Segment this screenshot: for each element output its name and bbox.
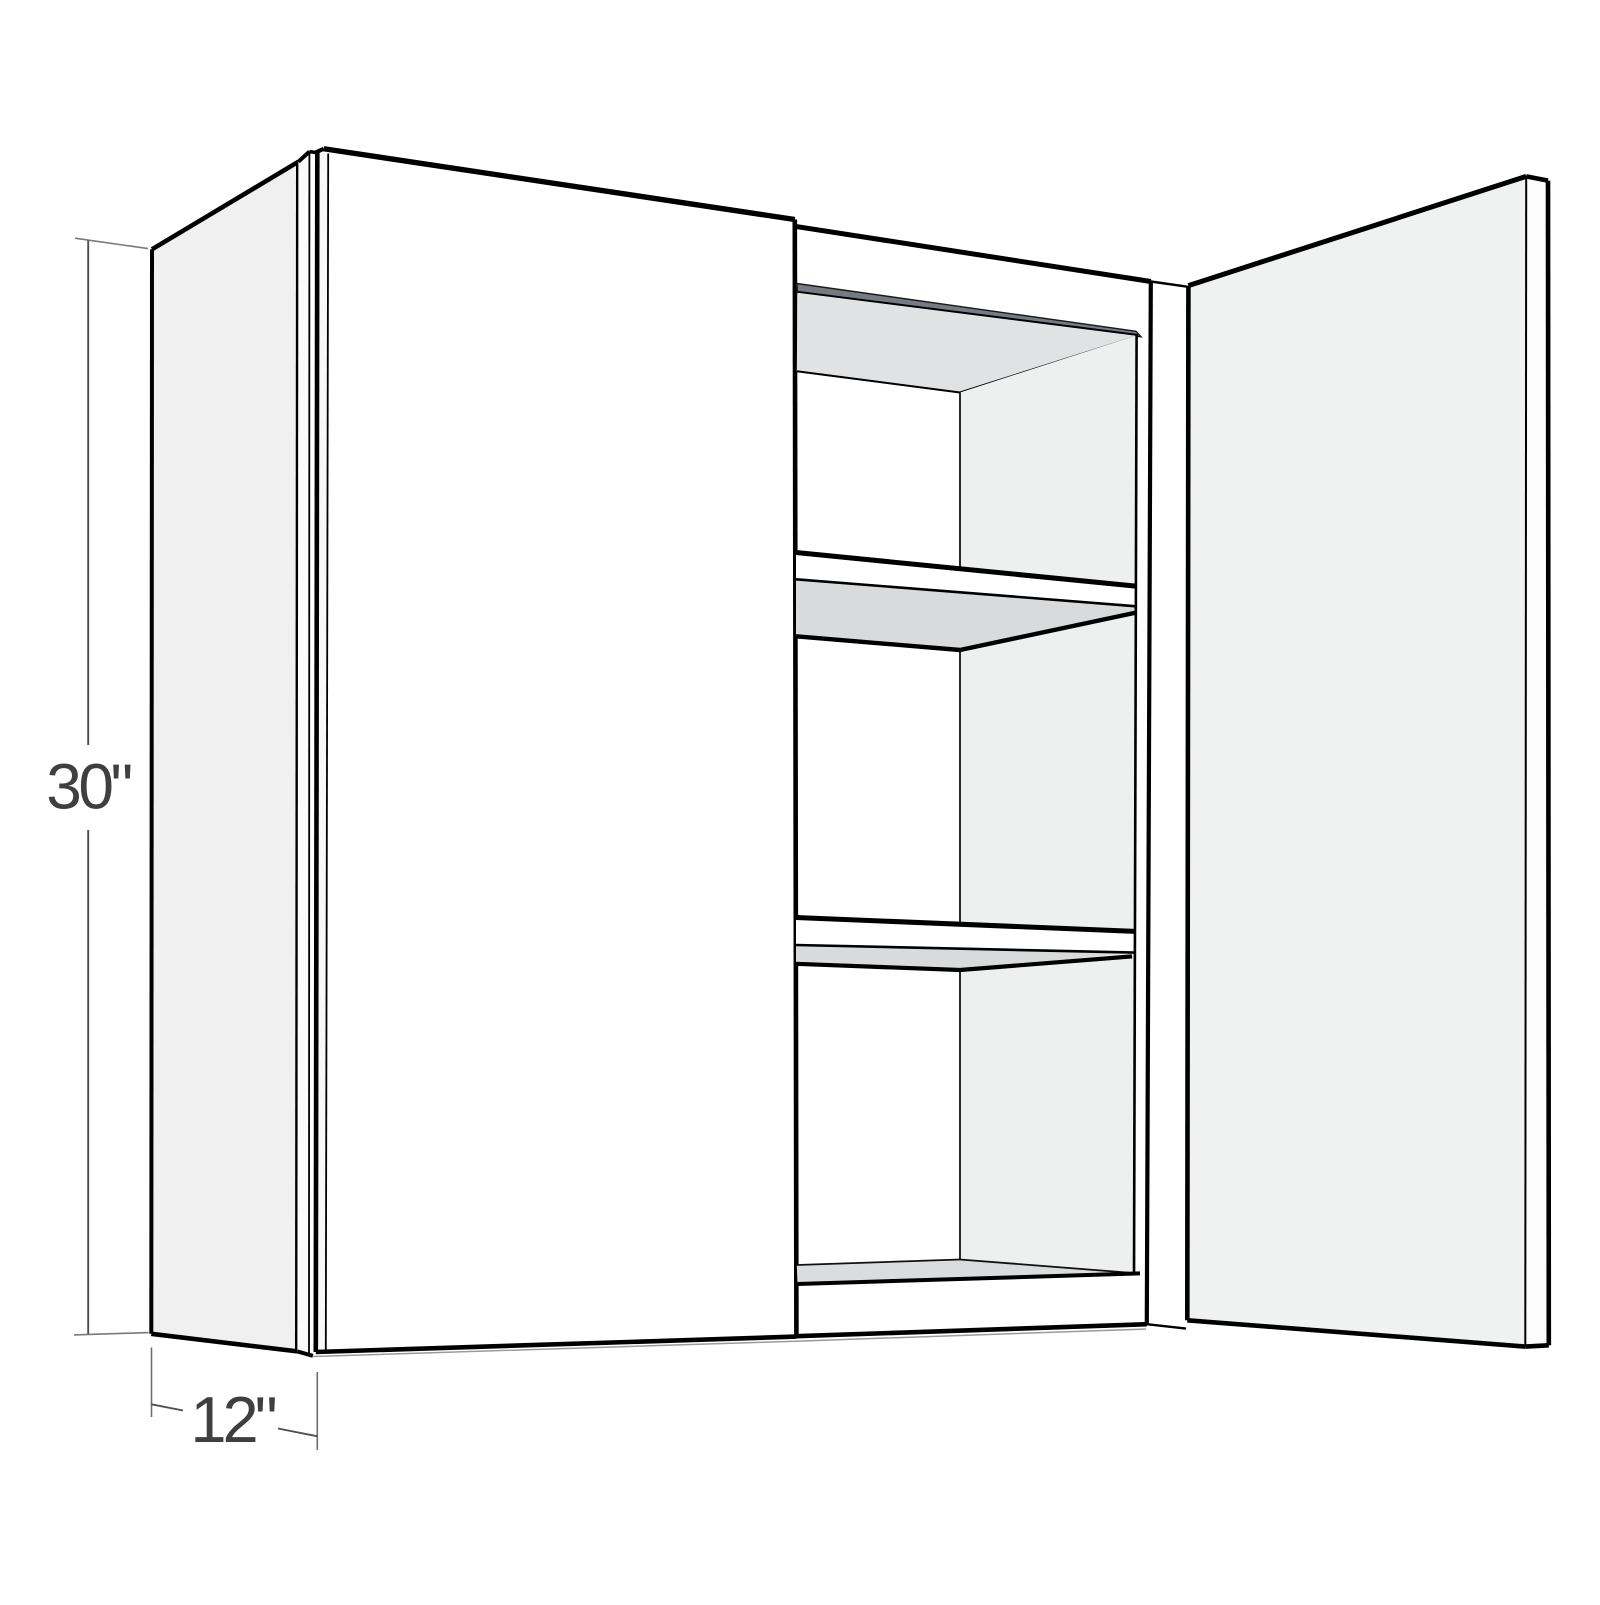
svg-text:30": 30" <box>46 751 130 823</box>
svg-text:12": 12" <box>190 1383 275 1456</box>
